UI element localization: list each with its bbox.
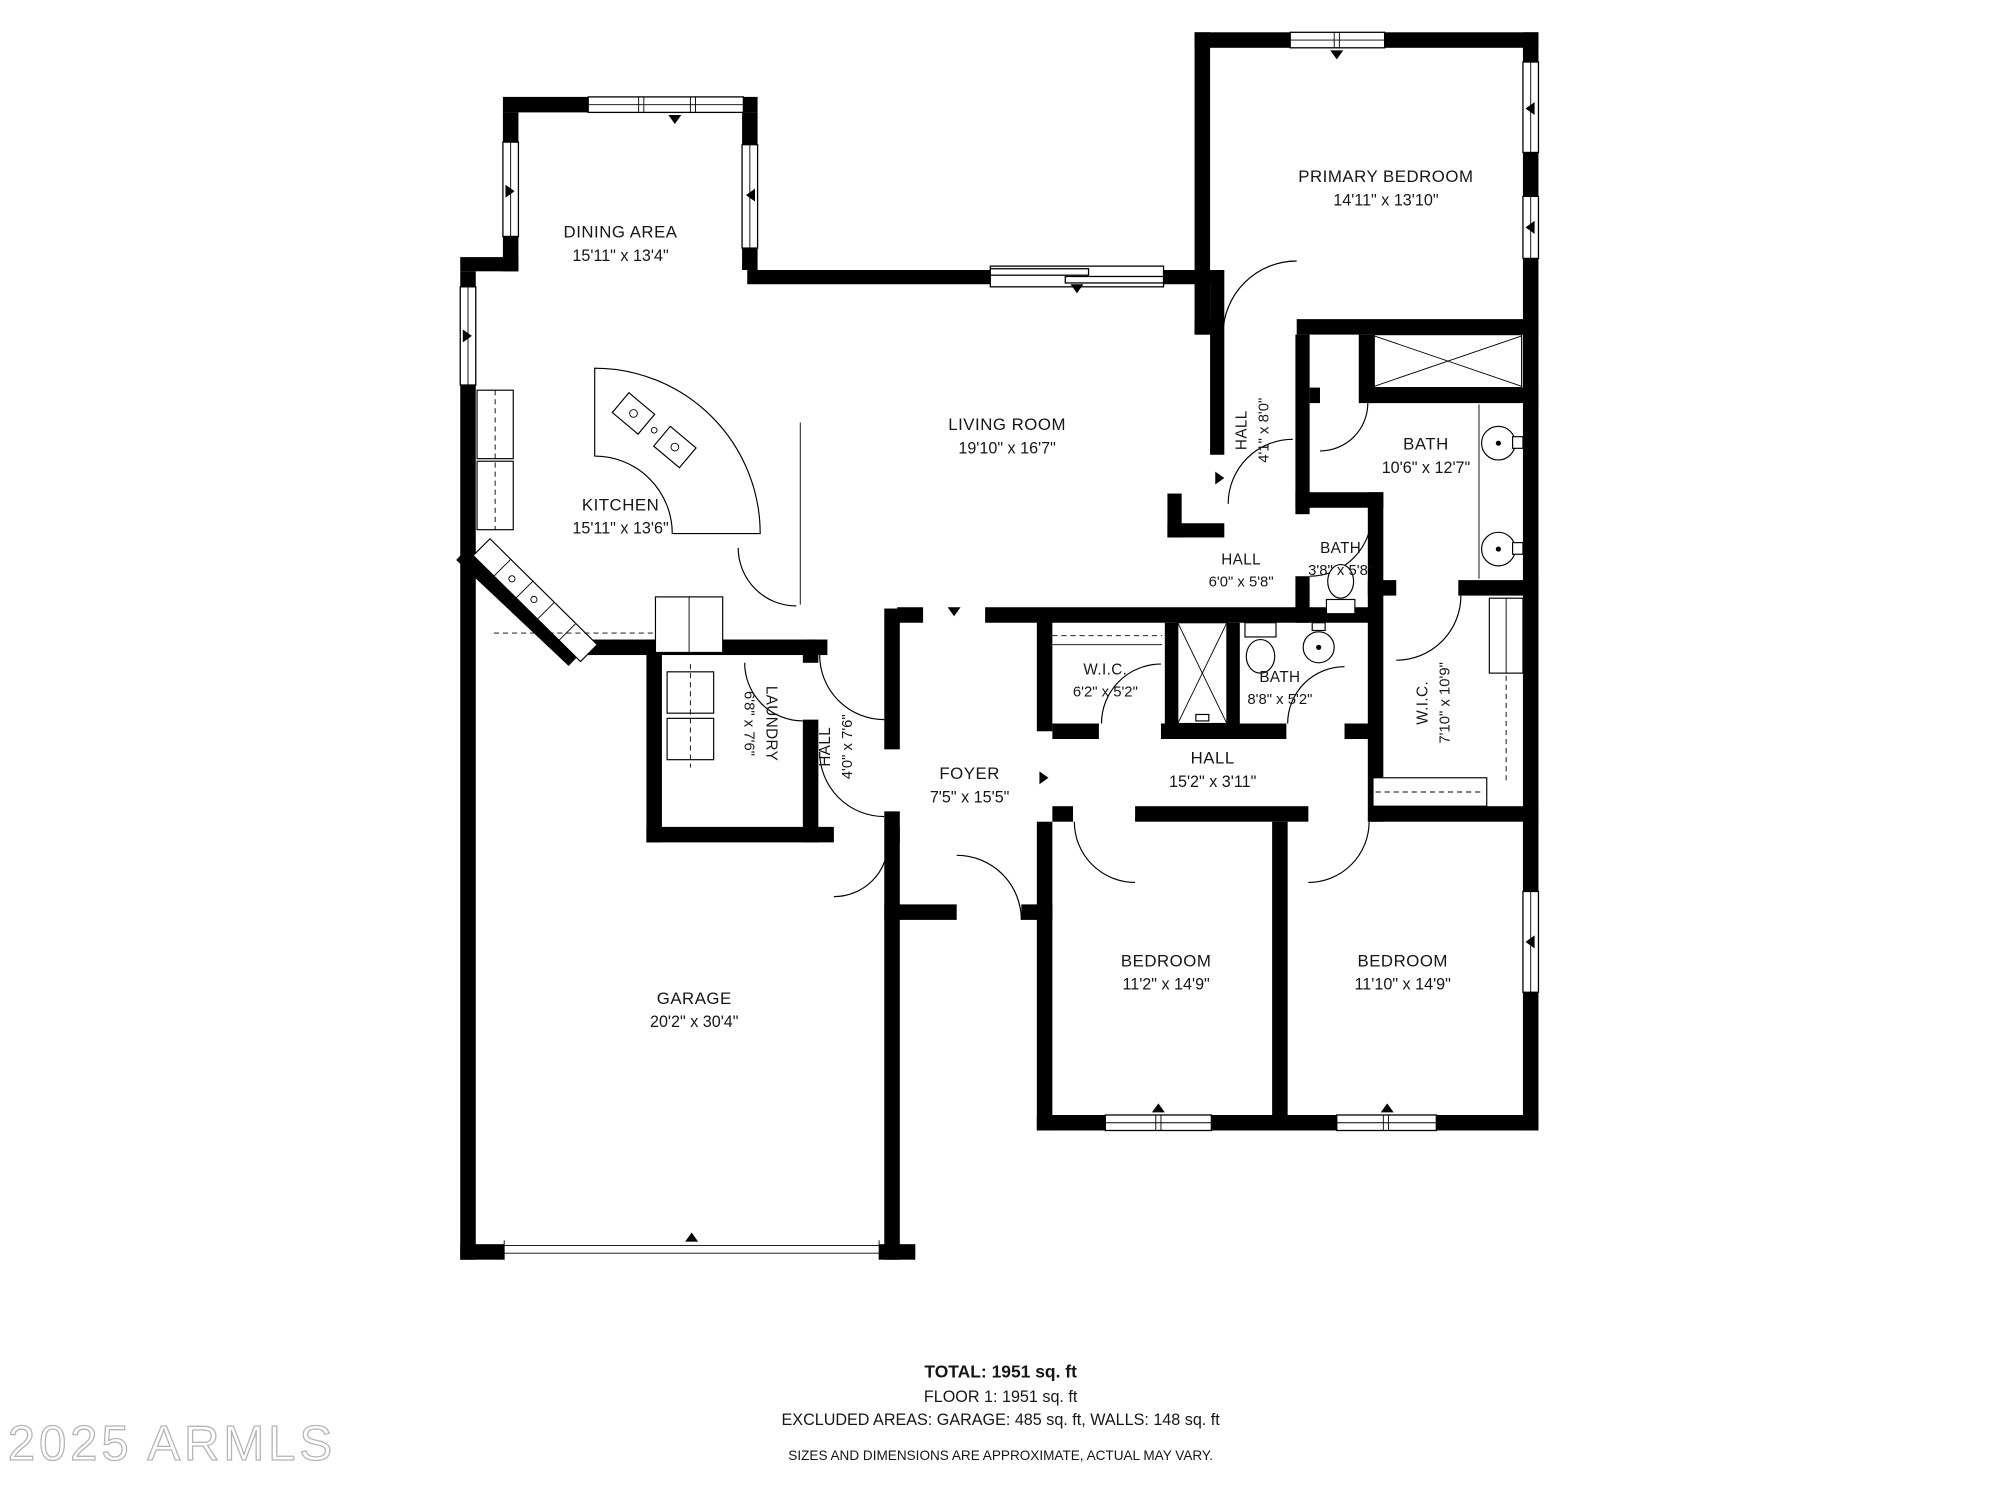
room-dims-bath-primary: 10'6" x 12'7" bbox=[1382, 459, 1471, 477]
walls-group-part bbox=[897, 607, 923, 623]
room-label-hall-laundry: HALL bbox=[817, 727, 834, 767]
doors-group bbox=[738, 261, 1461, 920]
walls-group-part bbox=[1052, 806, 1073, 822]
walls-group-part bbox=[1359, 335, 1375, 403]
doors-group-part bbox=[1396, 596, 1461, 661]
fixtures-group-part bbox=[1496, 547, 1501, 552]
markers-group-part bbox=[1070, 284, 1083, 293]
walls-group-part bbox=[884, 811, 900, 1259]
walls-group-part bbox=[1458, 580, 1538, 596]
windows-group-part bbox=[1065, 276, 1163, 282]
markers-group-part bbox=[1152, 1103, 1165, 1112]
fixtures-group-part bbox=[1496, 441, 1501, 446]
walls-group-part bbox=[1310, 388, 1320, 404]
walls-group-part bbox=[1295, 492, 1383, 508]
walls-group-part bbox=[1210, 270, 1224, 455]
windows-group-part bbox=[990, 269, 1088, 275]
room-label-bath-small: BATH bbox=[1320, 540, 1361, 557]
walls-group-part bbox=[1297, 319, 1539, 335]
room-dims-wic-small: 6'2" x 5'2" bbox=[1073, 684, 1138, 700]
room-dims-dining: 15'11" x 13'4" bbox=[572, 247, 669, 265]
room-dims-living: 19'10" x 16'7" bbox=[958, 439, 1056, 457]
walls-group-part bbox=[1195, 32, 1211, 334]
walls-group-part bbox=[1037, 609, 1053, 732]
room-dims-kitchen: 15'11" x 13'6" bbox=[572, 520, 669, 538]
room-dims-hall-bedrooms: 15'2" x 3'11" bbox=[1169, 773, 1257, 791]
walls-group-part bbox=[646, 827, 833, 843]
windows-group-part bbox=[504, 1240, 879, 1261]
markers-group-part bbox=[1330, 50, 1343, 59]
doors-group-part bbox=[957, 855, 1022, 920]
fixtures-group-part bbox=[1513, 543, 1523, 555]
walls-group-part bbox=[1295, 335, 1309, 515]
walls-group-part bbox=[1370, 806, 1538, 822]
walls-group-part bbox=[1368, 492, 1384, 821]
room-dims-garage: 20'2" x 30'4" bbox=[650, 1013, 739, 1031]
doors-group-part bbox=[1320, 403, 1368, 451]
doors-group-part bbox=[1223, 261, 1297, 335]
markers-group-part bbox=[1215, 472, 1224, 485]
fixtures-group-part bbox=[1513, 437, 1523, 449]
room-label-hall-mid: HALL bbox=[1221, 552, 1261, 569]
markers-group-part bbox=[1039, 771, 1048, 784]
room-label-dining: DINING AREA bbox=[564, 223, 678, 242]
room-labels-group-part: HALL 4'0" x 7'6" bbox=[817, 714, 856, 779]
room-labels-group-part: LAUNDRY 6'8" x 7'6" bbox=[741, 686, 780, 761]
room-dims-bath-small: 3'8" x 5'8" bbox=[1308, 563, 1373, 579]
walls-group-part bbox=[646, 640, 662, 843]
walls-group-part bbox=[1052, 724, 1099, 740]
room-label-hall-upper: HALL bbox=[1233, 410, 1250, 450]
footer-floor: FLOOR 1: 1951 sq. ft bbox=[924, 1388, 1078, 1406]
room-label-wic-large: W.I.C. bbox=[1414, 681, 1431, 725]
room-dims-hall-upper: 4'1" x 8'0" bbox=[1256, 398, 1272, 463]
room-label-bedroom-one: BEDROOM bbox=[1121, 951, 1211, 970]
fixtures-group-part bbox=[1312, 623, 1325, 631]
room-labels-group-part: W.I.C. 7'10" x 10'9" bbox=[1414, 662, 1453, 743]
room-dims-laundry: 6'8" x 7'6" bbox=[741, 691, 757, 756]
walls-group-part bbox=[884, 904, 956, 920]
fixtures-group-part bbox=[1316, 645, 1321, 650]
room-label-bath-primary: BATH bbox=[1403, 435, 1449, 454]
markers-group-part bbox=[668, 115, 681, 124]
walls-group-part bbox=[1368, 580, 1396, 596]
room-label-living: LIVING ROOM bbox=[948, 415, 1066, 434]
walls-group-part bbox=[460, 563, 476, 1259]
walls-group-part bbox=[886, 827, 900, 843]
footer-disclaimer: SIZES AND DIMENSIONS ARE APPROXIMATE, AC… bbox=[788, 1448, 1213, 1463]
markers-group-part bbox=[685, 1233, 698, 1242]
room-label-bath-hall: BATH bbox=[1259, 669, 1300, 686]
markers-group-part bbox=[948, 607, 961, 616]
room-label-foyer: FOYER bbox=[939, 764, 999, 783]
room-dims-bath-hall: 8'8" x 5'2" bbox=[1247, 692, 1312, 708]
doors-group-part bbox=[738, 548, 796, 606]
armls-watermark: 2025 ARMLS bbox=[8, 1417, 336, 1471]
walls-group-part bbox=[884, 609, 900, 750]
room-label-hall-bedrooms: HALL bbox=[1191, 749, 1235, 768]
footer-group: TOTAL: 1951 sq. ft FLOOR 1: 1951 sq. ft … bbox=[782, 1361, 1221, 1463]
room-label-garage: GARAGE bbox=[657, 989, 732, 1008]
walls-group-part bbox=[460, 257, 518, 271]
footer-excluded: EXCLUDED AREAS: GARAGE: 485 sq. ft, WALL… bbox=[782, 1411, 1221, 1429]
walls-group-part bbox=[1368, 388, 1539, 404]
room-dims-primary-bedroom: 14'11" x 13'10" bbox=[1333, 191, 1439, 209]
room-dims-foyer: 7'5" x 15'5" bbox=[930, 788, 1010, 806]
walls-group-part bbox=[1345, 724, 1382, 740]
walls-group-part bbox=[1037, 822, 1053, 1131]
fixtures-group-part bbox=[473, 539, 597, 662]
markers-group-part bbox=[1381, 1103, 1394, 1112]
room-dims-hall-laundry: 4'0" x 7'6" bbox=[840, 714, 856, 779]
room-dims-wic-large: 7'10" x 10'9" bbox=[1437, 662, 1453, 743]
room-dims-bedroom-one: 11'2" x 14'9" bbox=[1122, 976, 1210, 994]
room-label-laundry: LAUNDRY bbox=[763, 686, 780, 761]
fixtures-group-part bbox=[1196, 714, 1209, 720]
walls-group-part bbox=[1135, 806, 1308, 822]
floor-plan-page: DINING AREA 15'11" x 13'4" PRIMARY BEDRO… bbox=[0, 0, 2000, 1500]
floorplan-svg: DINING AREA 15'11" x 13'4" PRIMARY BEDRO… bbox=[0, 0, 2000, 1500]
fixtures-group-part bbox=[1245, 623, 1276, 637]
footer-total: TOTAL: 1951 sq. ft bbox=[924, 1361, 1077, 1381]
walls-group bbox=[460, 32, 1538, 1259]
fixtures-group-part bbox=[1326, 599, 1354, 613]
walls-group-part bbox=[803, 640, 819, 663]
room-dims-bedroom-two: 11'10" x 14'9" bbox=[1355, 976, 1452, 994]
walls-group-part bbox=[1161, 724, 1286, 740]
room-label-bedroom-two: BEDROOM bbox=[1357, 951, 1447, 970]
room-dims-hall-mid: 6'0" x 5'8" bbox=[1209, 575, 1274, 591]
room-label-primary-bedroom: PRIMARY BEDROOM bbox=[1298, 167, 1473, 186]
walls-group-part bbox=[1272, 822, 1288, 1115]
doors-group-part bbox=[834, 842, 888, 896]
walls-group-part bbox=[1167, 523, 1224, 537]
fixtures-group-part bbox=[1246, 640, 1274, 674]
room-label-kitchen: KITCHEN bbox=[582, 495, 659, 514]
doors-group-part bbox=[1074, 822, 1135, 883]
doors-group-part bbox=[1308, 822, 1369, 883]
doors-group-part bbox=[820, 655, 885, 720]
room-label-wic-small: W.I.C. bbox=[1083, 661, 1127, 678]
walls-group-part bbox=[747, 270, 990, 284]
